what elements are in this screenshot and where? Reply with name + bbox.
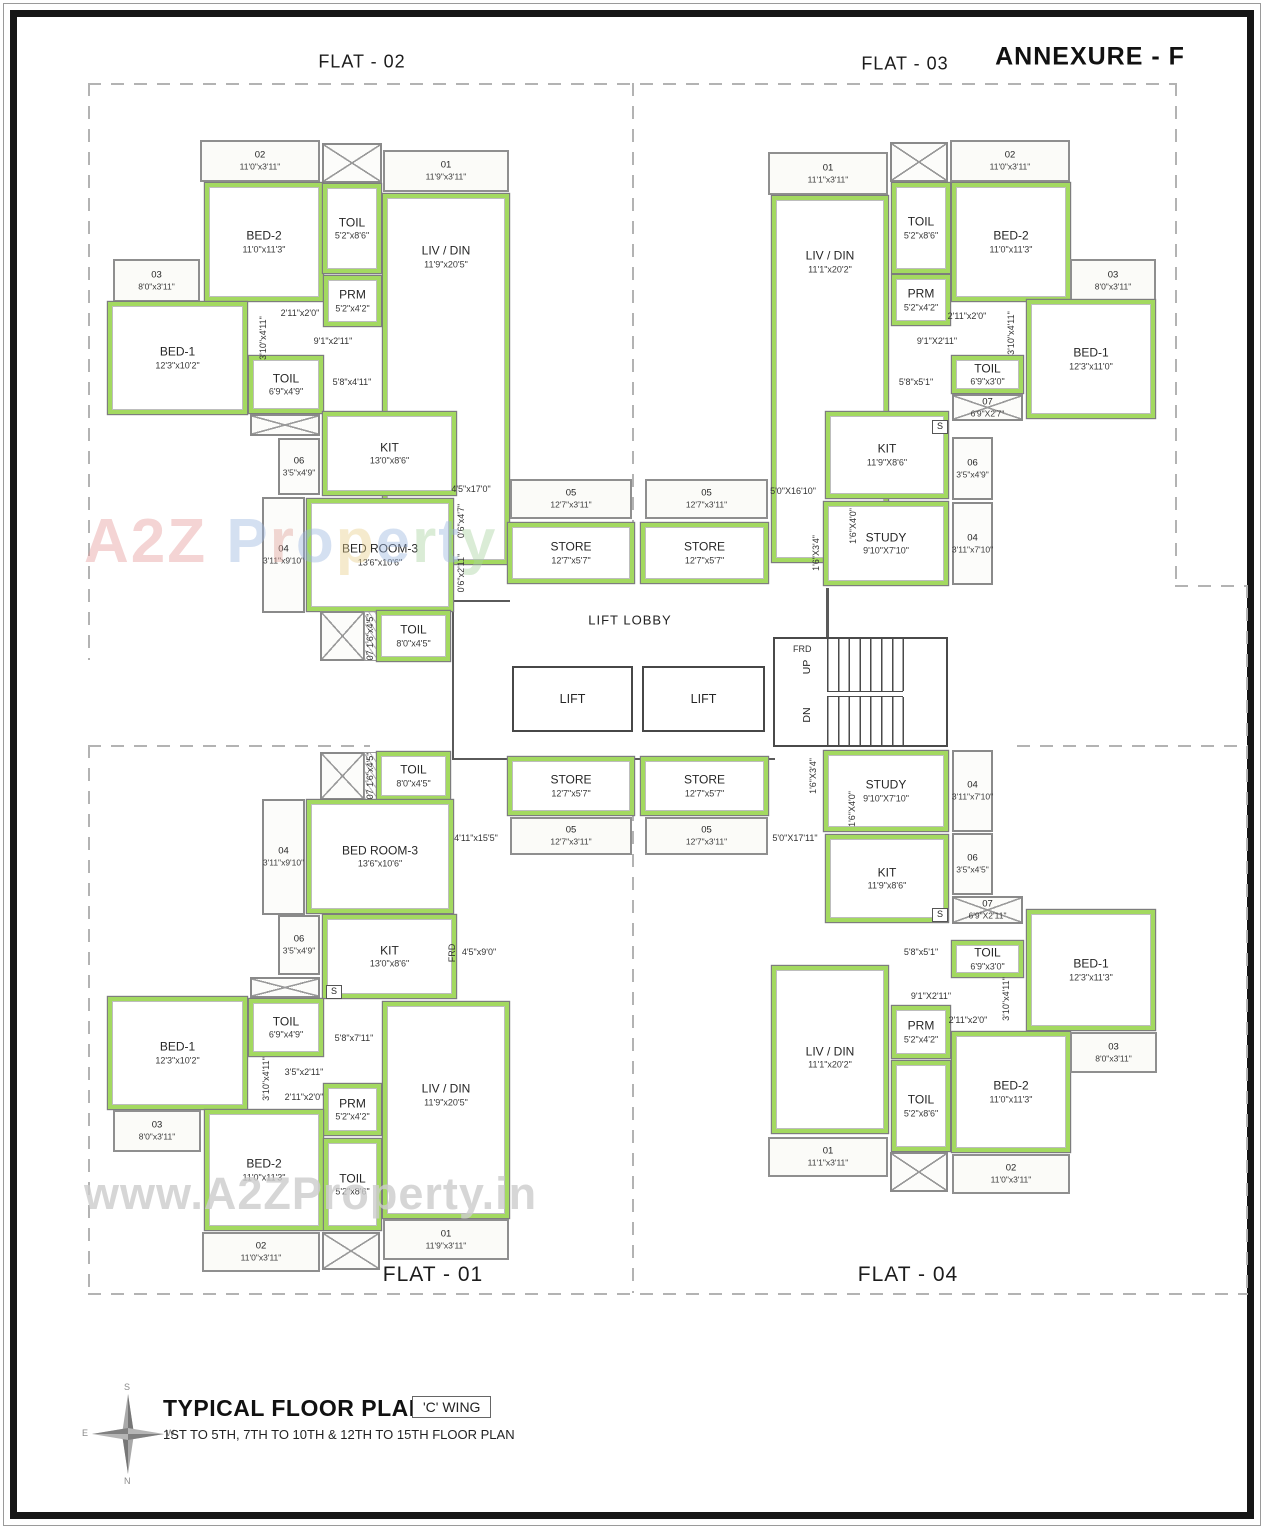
room-label: 0512'7"x3'11" (512, 824, 630, 847)
room-name: BED-2 (993, 228, 1028, 244)
room-dims: 11'0"x3'11" (241, 1253, 282, 1264)
room-name: BED ROOM-3 (342, 843, 418, 859)
room-label: 038'0"x3'11" (1072, 269, 1154, 292)
dim-label: 4'5"x9'0" (462, 947, 496, 957)
room-label: 043'11"x7'10" (954, 532, 991, 555)
room-dims: 6'9"X2'11" (969, 911, 1007, 922)
room-label: TOIL5'2"x8'6" (896, 214, 946, 241)
room-dims: 3'11"x9'10" (263, 556, 304, 567)
room-label: 038'0"x3'11" (115, 269, 198, 292)
room-dims: 6'9"x3'0" (970, 961, 1004, 973)
watermark-letter: A (84, 507, 131, 576)
stair-dn-label: DN (801, 697, 813, 733)
room-name: BED-2 (246, 228, 281, 244)
flat-04-label: FLAT - 04 (858, 1263, 958, 1287)
room-bed-2: BED-211'0"x11'3" (952, 1032, 1070, 1152)
room-name: PRM (908, 1018, 935, 1034)
room-dims: 6'9"x4'9" (269, 1029, 303, 1041)
room-label: BED ROOM-313'6"x10'6" (311, 541, 449, 568)
room-prm: PRM5'2"x4'2" (892, 275, 950, 325)
room-store: STORE12'7"x5'7" (508, 757, 634, 815)
balc-05: 0512'7"x3'11" (510, 479, 632, 519)
room-kit: KIT11'9"x8'6" (826, 835, 948, 922)
room-name: STUDY (866, 777, 907, 793)
shaft-06: 063'5"x4'9" (952, 437, 993, 500)
room-label: PRM5'2"x4'2" (896, 1018, 946, 1045)
room-dims: 12'7"x3'11" (686, 837, 727, 848)
room-name: TOIL (974, 361, 1000, 377)
room-label: S (327, 986, 341, 998)
sbox-s: S (932, 908, 948, 922)
dim-label: 5'0"X17'11" (772, 833, 817, 843)
room-label: STUDY9'10"X7'10" (828, 777, 944, 804)
stair-approach-wall (826, 588, 829, 637)
room-dims: 12'3"x10'2" (155, 360, 199, 372)
dim-label: 9'1"X2'11" (911, 991, 951, 1001)
room-label: TOIL8'0"x4'5" (381, 622, 446, 649)
room-bed-1: BED-112'3"x10'2" (108, 302, 247, 414)
dashed-boundary (1017, 745, 1248, 747)
room-name: BED-1 (160, 344, 195, 360)
room-label: TOIL6'9"x4'9" (253, 1014, 319, 1041)
dashed-boundary (88, 1293, 1248, 1295)
room-toil: TOIL5'2"x8'6" (323, 184, 381, 273)
duct (320, 752, 365, 800)
room-name: LIFT (560, 691, 586, 707)
room-name: TOIL (908, 214, 934, 230)
room-dims: 11'9"x20'5" (424, 1097, 468, 1109)
room-dims: 8'0"x3'11" (138, 281, 175, 292)
room-label: 0111'1"x3'11" (770, 1145, 886, 1168)
balc-01: 0111'1"x3'11" (768, 1137, 888, 1177)
room-dims: 11'0"x11'3" (989, 1094, 1032, 1106)
sheet-subtitle: 1ST TO 5TH, 7TH TO 10TH & 12TH TO 15TH F… (163, 1427, 515, 1442)
duct (250, 977, 320, 998)
room-label: 043'11"x9'10" (264, 543, 303, 566)
room-dims: 11'0"x11'3" (242, 1172, 285, 1184)
room-label: 0512'7"x3'11" (647, 487, 766, 510)
room-dims: 13'6"x10'6" (358, 557, 402, 569)
room-toil: TOIL5'2"x8'6" (892, 183, 950, 273)
room-label: TOIL6'9"x4'9" (253, 371, 319, 398)
room-prm: PRM5'2"x4'2" (324, 276, 381, 326)
room-kit: KIT13'0"x8'6" (323, 915, 456, 998)
room-name: 02 (255, 149, 266, 161)
compass-s: S (124, 1382, 130, 1392)
dim-label: 2'11"x2'0" (948, 311, 987, 321)
room-label: 0111'9"x3'11" (385, 159, 507, 182)
room-dims: 12'7"x5'7" (551, 788, 590, 800)
room-dims: 13'0"x8'6" (370, 455, 409, 467)
room-name: 05 (566, 487, 577, 499)
room-label: TOIL8'0"x4'5" (381, 762, 446, 789)
room-dims: 5'2"x4'2" (904, 1034, 938, 1046)
room-liv-din: LIV / DIN11'9"x20'5" (383, 1002, 509, 1218)
hatch (364, 611, 377, 661)
room-name: STORE (684, 539, 725, 555)
room-study: STUDY9'10"X7'10" (824, 502, 948, 585)
duct (322, 143, 382, 183)
dashed-boundary (88, 83, 90, 660)
room-name: 04 (278, 845, 289, 857)
duct (322, 1232, 380, 1270)
room-dims: 11'1"x3'11" (808, 174, 849, 185)
room-dims: 12'3"x11'0" (1069, 361, 1113, 373)
room-name: KIT (878, 865, 897, 881)
room-name: 02 (1005, 149, 1016, 161)
watermark-letter: 2 (131, 507, 167, 576)
balc-05: 0512'7"x3'11" (510, 817, 632, 855)
dim-label: 5'8"x4'11" (333, 377, 372, 387)
room-name: TOIL (273, 1014, 299, 1030)
room-prm: PRM5'2"x4'2" (892, 1006, 950, 1058)
room-dims: 3'5"x4'9" (956, 469, 988, 480)
room-label: PRM5'2"x4'2" (896, 286, 946, 313)
room-dims: 11'0"x3'11" (991, 1175, 1032, 1186)
duct (320, 611, 365, 661)
room-name: KIT (878, 441, 897, 457)
lobby-wall (452, 600, 454, 760)
room-dims: 11'9"x20'5" (424, 259, 468, 271)
room-name: S (331, 986, 337, 998)
dim-label: 9'1"x2'11" (314, 336, 353, 346)
balc-03: 038'0"x3'11" (1070, 1032, 1157, 1073)
duct-07: 076'9"X2'11" (952, 896, 1023, 924)
duct (890, 142, 948, 182)
dashed-boundary (632, 762, 634, 1293)
room-name: PRM (339, 1096, 366, 1112)
room-name: BED ROOM-3 (342, 541, 418, 557)
dashed-boundary (1246, 585, 1248, 1293)
room-dims: 11'9"X8'6" (867, 457, 907, 469)
room-study: STUDY9'10"X7'10" (824, 751, 948, 831)
room-dims: 12'7"x3'11" (550, 500, 591, 511)
room-dims: 11'0"x11'3" (989, 244, 1032, 256)
room-name: STORE (550, 539, 591, 555)
room-dims: 9'10"X7'10" (863, 545, 909, 557)
stair-flight-up (827, 639, 904, 691)
wing-badge: 'C' WING (412, 1396, 491, 1418)
watermark-letter (207, 507, 226, 576)
room-label: BED-211'0"x11'3" (209, 228, 319, 255)
room-name: BED-1 (1073, 345, 1108, 361)
duct (250, 414, 320, 436)
room-name: LIFT (691, 691, 717, 707)
dashed-boundary (632, 83, 634, 587)
dim-label: 3'10"x4'11" (1006, 311, 1016, 355)
room-name: BED-1 (1073, 956, 1108, 972)
room-label: KIT13'0"x8'6" (327, 440, 452, 467)
lift-lobby-label: LIFT LOBBY (588, 613, 671, 628)
room-name: 05 (566, 824, 577, 836)
room-name: LIV / DIN (806, 1044, 855, 1060)
room-dims: 5'2"x4'2" (904, 302, 938, 314)
room-label: BED-112'3"x10'2" (112, 1039, 243, 1066)
shaft-04: 043'11"x7'10" (952, 750, 993, 832)
balc-05: 0512'7"x3'11" (645, 479, 768, 519)
room-dims: 12'7"x5'7" (685, 788, 724, 800)
room-dims: 11'9"x3'11" (426, 1240, 467, 1251)
shaft-04: 043'11"x9'10" (262, 497, 305, 613)
room-label: KIT13'0"x8'6" (327, 943, 452, 970)
room-label: BED ROOM-313'6"x10'6" (311, 843, 449, 870)
room-name: STORE (684, 772, 725, 788)
room-label: LIV / DIN11'9"x20'5" (387, 1081, 505, 1108)
room-name: 05 (701, 487, 712, 499)
room-name: 01 (823, 162, 834, 174)
room-label: BED-211'0"x11'3" (956, 1078, 1066, 1105)
room-bed-room-3: BED ROOM-313'6"x10'6" (307, 499, 453, 611)
dim-label: 3'10"x4'11" (261, 1057, 271, 1101)
room-dims: 6'9"x4'9" (269, 386, 303, 398)
room-label: 0111'9"x3'11" (385, 1228, 507, 1251)
room-bed-room-3: BED ROOM-313'6"x10'6" (307, 800, 453, 913)
duct-07: 076'9"X2'7" (952, 394, 1023, 421)
compass-icon: S E W N (88, 1386, 168, 1486)
room-kit: KIT11'9"X8'6" (826, 412, 948, 498)
room-label: 063'5"x4'9" (954, 457, 991, 480)
dim-label: 4'11"x15'5" (454, 833, 498, 843)
room-name: 04 (967, 779, 978, 791)
room-dims: 12'7"x3'11" (686, 500, 727, 511)
room-label: 063'5"x4'9" (280, 933, 318, 956)
room-name: S (937, 909, 943, 921)
room-name: TOIL (908, 1092, 934, 1108)
room-toil: TOIL8'0"x4'5" (377, 752, 450, 800)
room-dims: 3'5"x4'9" (283, 467, 315, 478)
room-name: 01 (441, 1228, 452, 1240)
compass-n: N (124, 1476, 131, 1486)
room-name: 03 (152, 1119, 163, 1131)
room-name: 04 (278, 543, 289, 555)
room-name: S (937, 421, 943, 433)
annexure-label: ANNEXURE - F (995, 43, 1185, 72)
room-label: 063'5"x4'9" (280, 455, 318, 478)
room-name: TOIL (974, 945, 1000, 961)
dim-label: 5'8"x5'1" (904, 947, 938, 957)
watermark-letter: Z (167, 507, 207, 576)
dim-label: 5'8"x5'1" (899, 377, 933, 387)
room-label: STORE12'7"x5'7" (645, 539, 764, 566)
shaft-04: 043'11"x9'10" (262, 799, 305, 915)
room-dims: 9'10"X7'10" (863, 793, 909, 805)
room-label: STORE12'7"x5'7" (512, 772, 630, 799)
room-name: LIV / DIN (422, 243, 471, 259)
room-label: LIFT (644, 691, 763, 707)
room-name: 03 (1108, 1041, 1119, 1053)
room-dims: 5'2"x8'6" (904, 1108, 938, 1120)
lift-lift: LIFT (642, 666, 765, 732)
room-store: STORE12'7"x5'7" (508, 523, 634, 583)
dim-label: 3'10"x4'11" (258, 316, 268, 360)
room-name: TOIL (339, 215, 365, 231)
room-dims: 3'5"x4'9" (283, 946, 315, 957)
room-bed-2: BED-211'0"x11'3" (952, 183, 1070, 301)
room-label: TOIL6'9"x3'0" (956, 361, 1019, 388)
room-name: TOIL (400, 762, 426, 778)
room-dims: 5'2"x4'2" (335, 303, 369, 315)
shaft-06: 063'5"x4'9" (278, 438, 320, 495)
sbox-s: S (326, 985, 342, 999)
room-dims: 5'2"x8'6" (904, 230, 938, 242)
room-name: 01 (823, 1145, 834, 1157)
compass-star-icon (88, 1386, 168, 1486)
room-bed-1: BED-112'3"x11'0" (1027, 300, 1155, 418)
room-label: STORE12'7"x5'7" (512, 539, 630, 566)
room-label: TOIL5'2"x8'6" (327, 215, 377, 242)
room-name: STORE (550, 772, 591, 788)
room-name: 07 (982, 898, 993, 910)
room-label: 0211'0"x3'11" (202, 149, 318, 172)
room-dims: 11'9"x3'11" (426, 172, 467, 183)
dim-label: 1'6"X3'4" (808, 758, 818, 794)
room-name: TOIL (400, 622, 426, 638)
room-liv-din: LIV / DIN11'1"x20'2" (772, 966, 888, 1133)
balc-05: 0512'7"x3'11" (645, 817, 768, 855)
shaft-06: 063'5"x4'5" (952, 833, 993, 895)
room-label: 0211'0"x3'11" (954, 1162, 1068, 1185)
dashed-boundary (88, 745, 90, 1293)
room-toil: TOIL5'2"x8'6" (324, 1139, 381, 1230)
room-label: 038'0"x3'11" (115, 1119, 199, 1142)
room-label: S (933, 909, 947, 921)
room-label: LIV / DIN11'1"x20'2" (776, 1044, 884, 1071)
room-name: 06 (967, 852, 978, 864)
room-dims: 11'1"x3'11" (808, 1158, 849, 1169)
room-dims: 12'7"x5'7" (685, 555, 724, 567)
stair-up-label: UP (801, 649, 813, 685)
room-bed-2: BED-211'0"x11'3" (205, 1110, 323, 1230)
room-dims: 11'0"x3'11" (240, 162, 281, 173)
duct (890, 1152, 948, 1192)
hatch (364, 752, 377, 800)
sbox-s: S (932, 420, 948, 434)
room-dims: 6'9"X2'7" (971, 408, 1005, 419)
stair-flight-down (827, 697, 904, 745)
room-label: PRM5'2"x4'2" (328, 287, 377, 314)
room-label: BED-211'0"x11'3" (209, 1156, 319, 1183)
room-name: 07 (982, 396, 993, 408)
room-name: STUDY (866, 530, 907, 546)
balc-02: 0211'0"x3'11" (202, 1232, 320, 1272)
room-dims: 8'0"x4'5" (396, 638, 430, 650)
room-dims: 11'0"x11'3" (242, 244, 285, 256)
room-dims: 13'6"x10'6" (358, 858, 402, 870)
room-dims: 3'11"x7'10" (952, 544, 993, 555)
room-dims: 3'11"x7'10" (952, 792, 993, 803)
room-dims: 12'7"x5'7" (551, 555, 590, 567)
room-label: 0111'1"x3'11" (770, 162, 886, 185)
room-name: KIT (380, 943, 399, 959)
room-label: 043'11"x7'10" (954, 779, 991, 802)
room-name: LIV / DIN (806, 248, 855, 264)
room-label: 076'9"X2'7" (954, 396, 1021, 419)
room-dims: 3'5"x4'5" (956, 865, 988, 876)
room-label: PRM5'2"x4'2" (328, 1096, 377, 1123)
room-dims: 12'3"x11'3" (1069, 972, 1113, 984)
room-label: 063'5"x4'5" (954, 852, 991, 875)
room-label: 076'9"X2'11" (954, 898, 1021, 921)
room-dims: 13'0"x8'6" (370, 958, 409, 970)
room-name: PRM (339, 287, 366, 303)
staircase: FRDUPDN (773, 637, 948, 747)
dashed-boundary (1175, 83, 1177, 585)
room-label: TOIL6'9"x3'0" (956, 945, 1019, 972)
balc-03: 038'0"x3'11" (113, 259, 200, 302)
room-name: PRM (908, 286, 935, 302)
dim-label: 9'1"X2'11" (917, 336, 957, 346)
room-name: TOIL (273, 371, 299, 387)
balc-02: 0211'0"x3'11" (200, 140, 320, 182)
room-name: TOIL (339, 1171, 365, 1187)
room-label: 0512'7"x3'11" (647, 824, 766, 847)
balc-01: 0111'1"x3'11" (768, 152, 888, 195)
sheet-title: TYPICAL FLOOR PLAN (163, 1395, 426, 1422)
room-label: 043'11"x9'10" (264, 845, 303, 868)
room-dims: 8'0"x3'11" (1095, 1053, 1132, 1064)
room-dims: 6'9"x3'0" (970, 376, 1004, 388)
room-label: BED-211'0"x11'3" (956, 228, 1066, 255)
room-dims: 8'0"x3'11" (1095, 281, 1132, 292)
room-bed-1: BED-112'3"x10'2" (108, 997, 247, 1109)
room-name: 04 (967, 532, 978, 544)
dim-label: 3'5"x2'11" (285, 1067, 324, 1077)
room-name: 06 (294, 455, 305, 467)
balc-03: 038'0"x3'11" (113, 1110, 201, 1152)
room-label: 0211'0"x3'11" (204, 1240, 318, 1263)
room-label: LIV / DIN11'9"x20'5" (387, 243, 505, 270)
room-toil: TOIL5'2"x8'6" (892, 1061, 950, 1151)
balc-01: 0111'9"x3'11" (383, 150, 509, 192)
room-dims: 11'0"x3'11" (990, 162, 1031, 173)
room-prm: PRM5'2"x4'2" (324, 1084, 381, 1135)
room-toil: TOIL6'9"x4'9" (249, 356, 323, 413)
room-toil: TOIL6'9"x3'0" (952, 356, 1023, 393)
room-store: STORE12'7"x5'7" (641, 757, 768, 815)
flat-01-label: FLAT - 01 (383, 1263, 483, 1287)
room-name: BED-2 (246, 1156, 281, 1172)
room-dims: 12'3"x10'2" (155, 1055, 199, 1067)
room-label: KIT11'9"X8'6" (830, 441, 944, 468)
room-label: LIFT (514, 691, 631, 707)
room-label: 038'0"x3'11" (1072, 1041, 1155, 1064)
room-name: 06 (967, 457, 978, 469)
balc-02: 0211'0"x3'11" (950, 140, 1070, 182)
room-toil: TOIL6'9"x3'0" (952, 941, 1023, 977)
room-name: 02 (1006, 1162, 1017, 1174)
room-label: STUDY9'10"X7'10" (828, 530, 944, 557)
room-label: KIT11'9"x8'6" (830, 865, 944, 892)
dashed-boundary (88, 745, 370, 747)
flat-02-label: FLAT - 02 (318, 52, 405, 73)
room-toil: TOIL8'0"x4'5" (377, 611, 450, 661)
room-store: STORE12'7"x5'7" (641, 523, 768, 583)
room-dims: 11'1"x20'2" (808, 1059, 852, 1071)
room-kit: KIT13'0"x8'6" (323, 412, 456, 495)
floor-plan-sheet: FLAT - 02 FLAT - 03 ANNEXURE - F FLAT - … (0, 0, 1264, 1529)
room-dims: 8'0"x3'11" (139, 1132, 176, 1143)
room-dims: 3'11"x9'10" (263, 858, 304, 869)
dim-label: 2'11"x2'0" (285, 1092, 324, 1102)
room-name: BED-1 (160, 1039, 195, 1055)
room-bed-2: BED-211'0"x11'3" (205, 183, 323, 301)
room-label: BED-112'3"x11'3" (1031, 956, 1151, 983)
room-label: STORE12'7"x5'7" (645, 772, 764, 799)
room-label: S (933, 421, 947, 433)
room-name: KIT (380, 440, 399, 456)
room-dims: 11'1"x20'2" (808, 264, 852, 276)
room-name: 01 (441, 159, 452, 171)
